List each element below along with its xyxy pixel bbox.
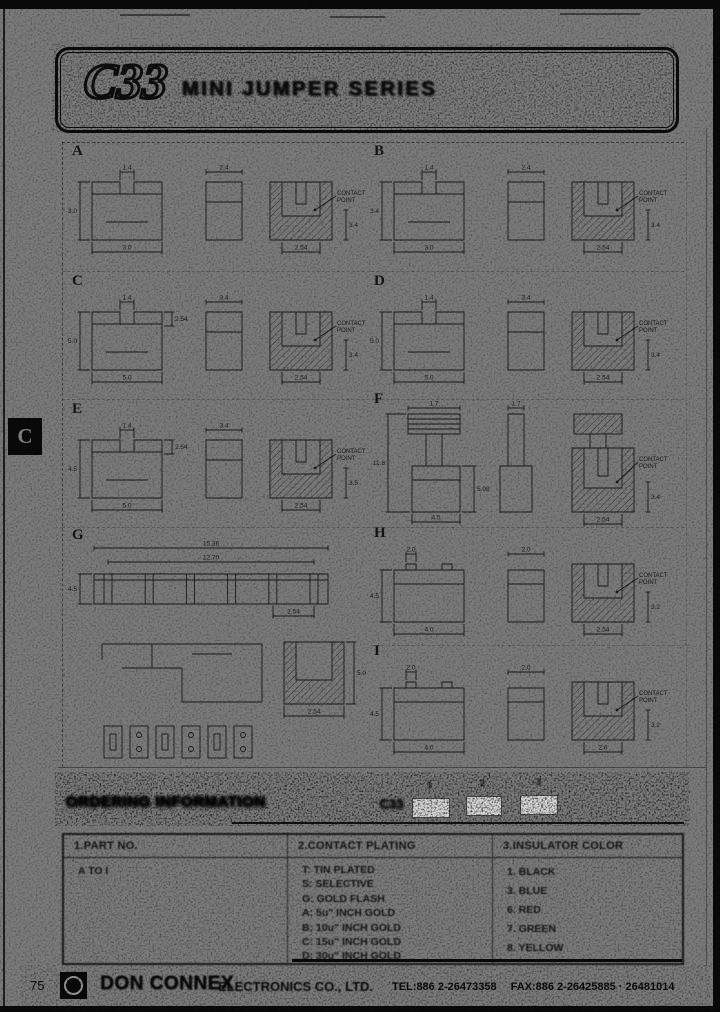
logo-dot — [71, 983, 76, 988]
svg-text:12.70: 12.70 — [203, 555, 220, 562]
table-item: 7. GREEN — [507, 920, 682, 939]
table-column-part-no: 1.PART NO. A TO I — [64, 835, 287, 963]
table-column-contact-plating: 2.CONTACT PLATING T: TIN PLATEDS: SELECT… — [287, 835, 492, 963]
svg-text:1.4: 1.4 — [424, 165, 433, 172]
svg-text:3.2: 3.2 — [651, 604, 660, 611]
svg-text:4.5: 4.5 — [68, 586, 77, 593]
column-items: T: TIN PLATEDS: SELECTIVEG: GOLD FLASHA:… — [288, 863, 492, 964]
svg-text:2.54: 2.54 — [287, 609, 300, 616]
table-item: 1. BLACK — [507, 863, 682, 882]
svg-text:CONTACT: CONTACT — [337, 449, 366, 455]
svg-text:CONTACT: CONTACT — [639, 191, 668, 197]
table-item: S: SELECTIVE — [302, 877, 492, 891]
table-item: G: GOLD FLASH — [302, 892, 492, 906]
svg-text:2.54: 2.54 — [597, 517, 610, 524]
svg-text:11.8: 11.8 — [373, 460, 386, 467]
ordering-title: ORDERING INFORMATION — [66, 793, 266, 810]
table-item: 6. RED — [507, 901, 682, 920]
drawing-G-detail: 5.02.54 — [92, 624, 372, 770]
svg-text:3.4: 3.4 — [219, 423, 228, 430]
table-column-insulator-color: 3.INSULATOR COLOR 1. BLACK3. BLUE6. RED7… — [492, 835, 682, 963]
svg-text:2.54: 2.54 — [295, 375, 308, 382]
svg-text:3.5: 3.5 — [349, 480, 358, 487]
svg-text:2.54: 2.54 — [295, 245, 308, 252]
svg-text:POINT: POINT — [639, 464, 658, 470]
svg-text:CONTACT: CONTACT — [639, 573, 668, 579]
svg-text:2.54: 2.54 — [597, 627, 610, 634]
drawing-E: 1.44.55.02.543.4CONTACTPOINT3.52.54 — [66, 410, 366, 522]
table-item: T: TIN PLATED — [302, 863, 492, 877]
scan-edge-bottom — [0, 1006, 720, 1012]
svg-text:5.0: 5.0 — [122, 375, 131, 382]
svg-text:3.2: 3.2 — [651, 722, 660, 729]
svg-text:3.4: 3.4 — [651, 222, 660, 229]
svg-text:5.0: 5.0 — [424, 375, 433, 382]
svg-text:2.4: 2.4 — [521, 165, 530, 172]
svg-text:1.7: 1.7 — [511, 401, 520, 408]
svg-text:CONTACT: CONTACT — [639, 457, 668, 463]
svg-text:POINT: POINT — [337, 328, 356, 334]
svg-text:2.0: 2.0 — [521, 665, 530, 672]
fax-number: FAX:886 2-26425885 · 26481014 — [511, 981, 675, 993]
svg-text:3.4: 3.4 — [370, 208, 379, 215]
band-underline — [232, 822, 684, 824]
svg-text:2.6: 2.6 — [598, 745, 607, 752]
svg-text:4.5: 4.5 — [370, 593, 379, 600]
column-items: 1. BLACK3. BLUE6. RED7. GREEN8. YELLOW — [493, 863, 682, 958]
svg-text:3.4: 3.4 — [349, 352, 358, 359]
ordering-position-number: 3 — [536, 777, 541, 787]
svg-text:1.4: 1.4 — [424, 295, 433, 302]
svg-text:POINT: POINT — [337, 198, 356, 204]
svg-text:POINT: POINT — [639, 198, 658, 204]
drawing-B: 1.43.43.02.4CONTACTPOINT3.42.54 — [368, 152, 668, 264]
svg-text:POINT: POINT — [639, 698, 658, 704]
svg-text:1.4: 1.4 — [122, 165, 131, 172]
page-number: 75 — [30, 978, 44, 993]
svg-text:3.4: 3.4 — [349, 222, 358, 229]
drawing-sections: A1.43.03.02.4CONTACTPOINT3.42.54B1.43.43… — [0, 0, 720, 780]
ordering-series-code: C33 — [379, 796, 403, 811]
svg-text:2.54: 2.54 — [175, 444, 188, 451]
ordering-position-number: 2 — [480, 778, 485, 788]
svg-text:5.08: 5.08 — [477, 486, 490, 493]
svg-text:3.4: 3.4 — [219, 295, 228, 302]
svg-text:3.4: 3.4 — [651, 352, 660, 359]
datasheet-page: C33 MINI JUMPER SERIES C A1.43.03.02.4CO… — [0, 0, 720, 1012]
svg-text:2.0: 2.0 — [521, 547, 530, 554]
svg-text:5.0: 5.0 — [122, 503, 131, 510]
svg-text:3.4: 3.4 — [651, 494, 660, 501]
drawing-I: 2.04.54.02.0CONTACTPOINT3.22.6 — [368, 652, 668, 764]
svg-text:POINT: POINT — [639, 580, 658, 586]
table-item: A: 5u" INCH GOLD — [302, 906, 492, 920]
svg-text:2.54: 2.54 — [308, 709, 321, 716]
svg-text:5.0: 5.0 — [370, 338, 379, 345]
column-items: A TO I — [64, 863, 287, 879]
svg-text:15.36: 15.36 — [203, 541, 220, 548]
svg-text:2.54: 2.54 — [295, 503, 308, 510]
tel-number: TEL:886 2-26473358 — [392, 981, 497, 993]
svg-text:3.0: 3.0 — [424, 245, 433, 252]
svg-text:2.54: 2.54 — [175, 316, 188, 323]
svg-text:2.0: 2.0 — [406, 665, 415, 672]
ordering-position-number: 1 — [427, 780, 432, 790]
table-item: C: 15u" INCH GOLD — [302, 935, 492, 949]
svg-text:2.4: 2.4 — [219, 165, 228, 172]
drawing-A: 1.43.03.02.4CONTACTPOINT3.42.54 — [66, 152, 366, 264]
svg-text:1.7: 1.7 — [429, 401, 438, 408]
svg-text:5.0: 5.0 — [357, 670, 366, 677]
column-header: 1.PART NO. — [64, 835, 287, 858]
svg-text:4.5: 4.5 — [68, 466, 77, 473]
drawing-C: 1.45.05.02.543.4CONTACTPOINT3.42.54 — [66, 282, 366, 394]
drawing-F: 1.711.85.084.51.7CONTACTPOINT3.42.54 — [368, 400, 668, 530]
svg-text:1.4: 1.4 — [122, 295, 131, 302]
svg-text:CONTACT: CONTACT — [337, 191, 366, 197]
svg-text:POINT: POINT — [337, 456, 356, 462]
ordering-box-plating — [466, 796, 502, 816]
ordering-box-color — [520, 795, 558, 815]
svg-text:3.0: 3.0 — [68, 208, 77, 215]
table-item: A TO I — [78, 863, 287, 879]
svg-text:2.54: 2.54 — [597, 245, 610, 252]
svg-text:3.0: 3.0 — [122, 245, 131, 252]
contact-info: TEL:886 2-26473358FAX:886 2-26425885 · 2… — [392, 981, 688, 993]
svg-text:4.0: 4.0 — [424, 745, 433, 752]
svg-text:5.0: 5.0 — [68, 338, 77, 345]
drawing-H: 2.04.54.02.0CONTACTPOINT3.22.54 — [368, 534, 668, 646]
ordering-box-part — [412, 798, 450, 818]
svg-text:4.0: 4.0 — [424, 627, 433, 634]
svg-text:2.54: 2.54 — [597, 375, 610, 382]
company-suffix: ELECTRONICS CO., LTD. — [218, 979, 373, 994]
company-name: DON CONNEX — [100, 973, 234, 995]
svg-text:3.4: 3.4 — [521, 295, 530, 302]
table-heavy-underline — [292, 959, 682, 962]
svg-text:CONTACT: CONTACT — [639, 321, 668, 327]
svg-text:CONTACT: CONTACT — [639, 691, 668, 697]
table-item: 3. BLUE — [507, 882, 682, 901]
company-logo-icon — [60, 972, 87, 999]
svg-text:POINT: POINT — [639, 328, 658, 334]
logo-ring — [64, 976, 83, 995]
drawing-D: 1.45.05.03.4CONTACTPOINT3.42.54 — [368, 282, 668, 394]
svg-text:1.4: 1.4 — [122, 423, 131, 430]
table-item: B: 10u" INCH GOLD — [302, 921, 492, 935]
drawing-G: 15.3612.704.52.54 — [66, 536, 366, 624]
ordering-table: 1.PART NO. A TO I 2.CONTACT PLATING T: T… — [62, 833, 684, 965]
svg-text:CONTACT: CONTACT — [337, 321, 366, 327]
table-item: 8. YELLOW — [507, 939, 682, 958]
svg-text:4.5: 4.5 — [431, 515, 440, 522]
svg-text:2.0: 2.0 — [406, 547, 415, 554]
column-header: 2.CONTACT PLATING — [288, 835, 492, 858]
column-header: 3.INSULATOR COLOR — [493, 835, 682, 858]
